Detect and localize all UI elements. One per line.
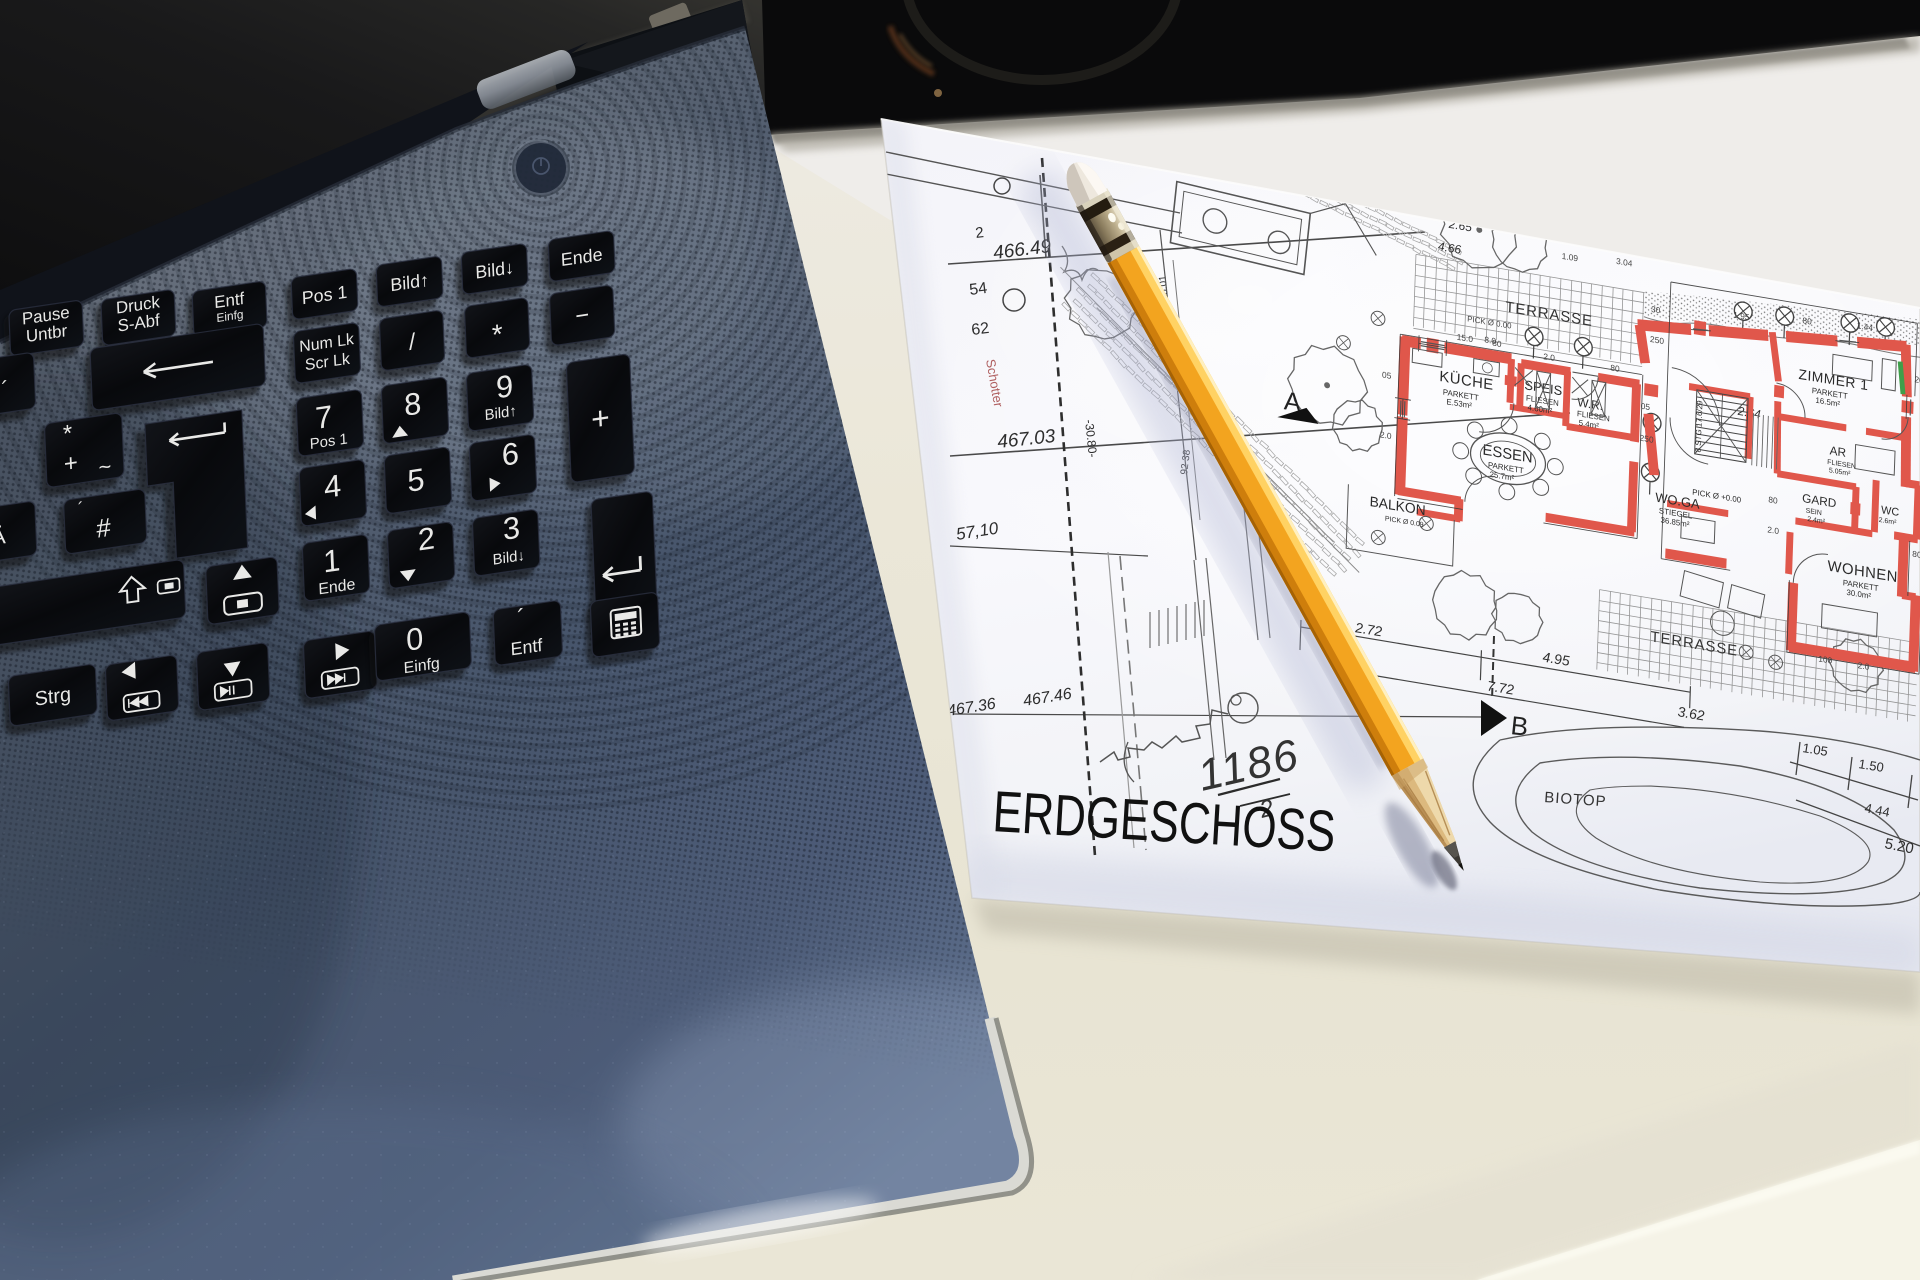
svg-text:2.0: 2.0 xyxy=(1543,351,1555,363)
svg-text:2.0: 2.0 xyxy=(1767,524,1779,536)
svg-text:30: 30 xyxy=(1651,304,1661,316)
svg-text:5: 5 xyxy=(407,461,426,498)
svg-text:+: + xyxy=(590,399,610,438)
svg-text:80: 80 xyxy=(1768,494,1778,506)
svg-text:4: 4 xyxy=(323,468,342,505)
svg-text:8.0: 8.0 xyxy=(1484,334,1496,346)
svg-text:−: − xyxy=(575,301,590,330)
svg-text:*: * xyxy=(63,420,73,448)
svg-text:1: 1 xyxy=(322,542,341,579)
svg-text:´: ´ xyxy=(517,604,526,632)
svg-text:80: 80 xyxy=(1912,549,1920,561)
svg-text:0: 0 xyxy=(405,620,424,657)
svg-text:AR: AR xyxy=(1829,443,1846,460)
svg-text:#: # xyxy=(96,512,112,544)
svg-text:05: 05 xyxy=(1382,369,1392,381)
svg-text:80: 80 xyxy=(1802,315,1812,327)
svg-text:´: ´ xyxy=(1,376,9,402)
svg-text:*: * xyxy=(491,318,503,351)
svg-text:3: 3 xyxy=(502,510,521,547)
svg-text:2.0: 2.0 xyxy=(1858,660,1870,672)
svg-text:80: 80 xyxy=(1610,362,1620,374)
svg-text:20: 20 xyxy=(1914,374,1920,386)
svg-text:8: 8 xyxy=(403,385,422,422)
svg-text:7: 7 xyxy=(314,399,333,436)
svg-text:05: 05 xyxy=(1641,401,1651,413)
svg-text:54: 54 xyxy=(968,280,988,299)
svg-text:2.0: 2.0 xyxy=(1380,429,1392,441)
svg-text:6: 6 xyxy=(501,435,520,472)
svg-text:+: + xyxy=(63,449,78,478)
svg-text:~: ~ xyxy=(98,453,112,480)
svg-text:2: 2 xyxy=(417,520,436,557)
svg-text:´: ´ xyxy=(78,499,84,519)
svg-text:62: 62 xyxy=(970,320,990,339)
svg-text:9: 9 xyxy=(495,368,514,405)
svg-text:8 STG 17.6/29: 8 STG 17.6/29 xyxy=(1694,399,1705,453)
